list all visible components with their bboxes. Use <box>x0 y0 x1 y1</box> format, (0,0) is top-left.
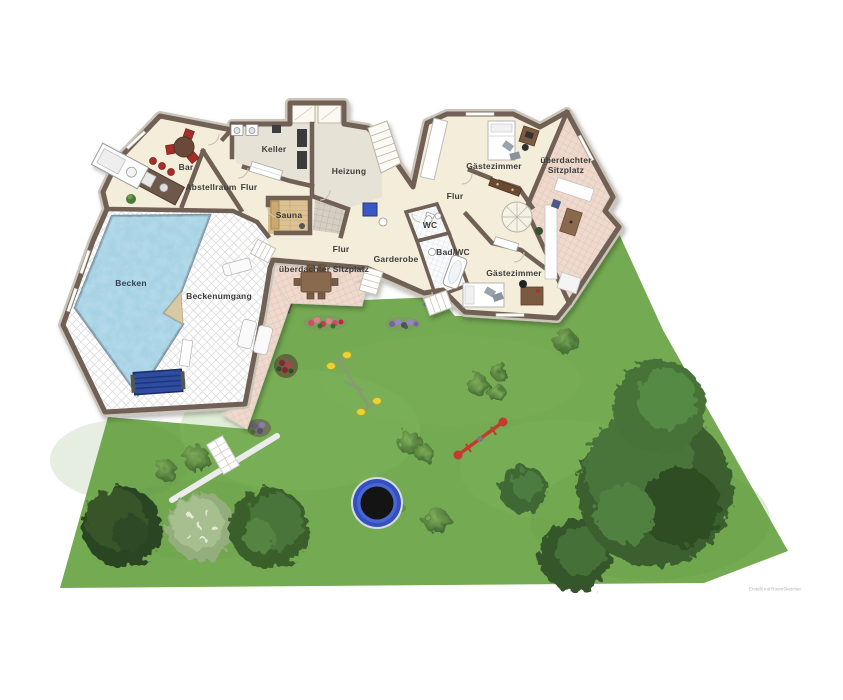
room-label-sauna: Sauna <box>276 211 303 221</box>
tree-deciduous <box>229 488 309 568</box>
spiral-stairs <box>502 202 532 232</box>
watermark: Erstellt mit RoomSketcher <box>749 587 801 592</box>
flower-bed-red <box>274 354 298 378</box>
room-label-flur-links: Flur <box>333 245 350 255</box>
room-label-keller: Keller <box>262 145 287 155</box>
tree-conifer <box>82 487 162 567</box>
room-label-sitzplatz-links: überdachter Sitzplatz <box>279 265 369 275</box>
room-label-gaestezimmer-unten: Gästezimmer <box>486 269 542 279</box>
tree-flowering <box>167 493 235 561</box>
plant-highlight <box>128 195 133 200</box>
flower-bed-pink <box>303 315 347 331</box>
floor-plan-canvas: Bar Abstellraum Keller Flur Heizung Saun… <box>0 0 843 700</box>
flower-bed-purple-patch <box>247 419 271 437</box>
room-label-garderobe: Garderobe <box>374 255 419 265</box>
room-label-bad-wc: Bad/WC <box>436 248 470 258</box>
room-label-flur-mitte: Flur <box>447 192 464 202</box>
room-label-wc: WC <box>423 221 438 231</box>
floor-plan-drawing <box>0 0 843 700</box>
tree-small-left <box>499 465 547 513</box>
room-label-bar: Bar <box>179 163 194 173</box>
room-label-sitzplatz-rechts: überdachter Sitzplatz <box>537 156 595 176</box>
tree-upper-right <box>612 360 706 454</box>
bath-sink <box>429 249 436 256</box>
wc-sink <box>435 213 441 219</box>
room-label-flur-keller: Flur <box>241 183 258 193</box>
room-label-abstellraum: Abstellraum <box>185 183 236 193</box>
room-label-heizung: Heizung <box>332 167 366 177</box>
room-label-gaestezimmer-oben: Gästezimmer <box>466 162 522 172</box>
pool-cover-roller <box>130 369 185 395</box>
room-label-beckenumgang: Beckenumgang <box>186 292 252 302</box>
flower-bed-purple <box>385 317 421 331</box>
room-label-becken: Becken <box>115 279 146 289</box>
